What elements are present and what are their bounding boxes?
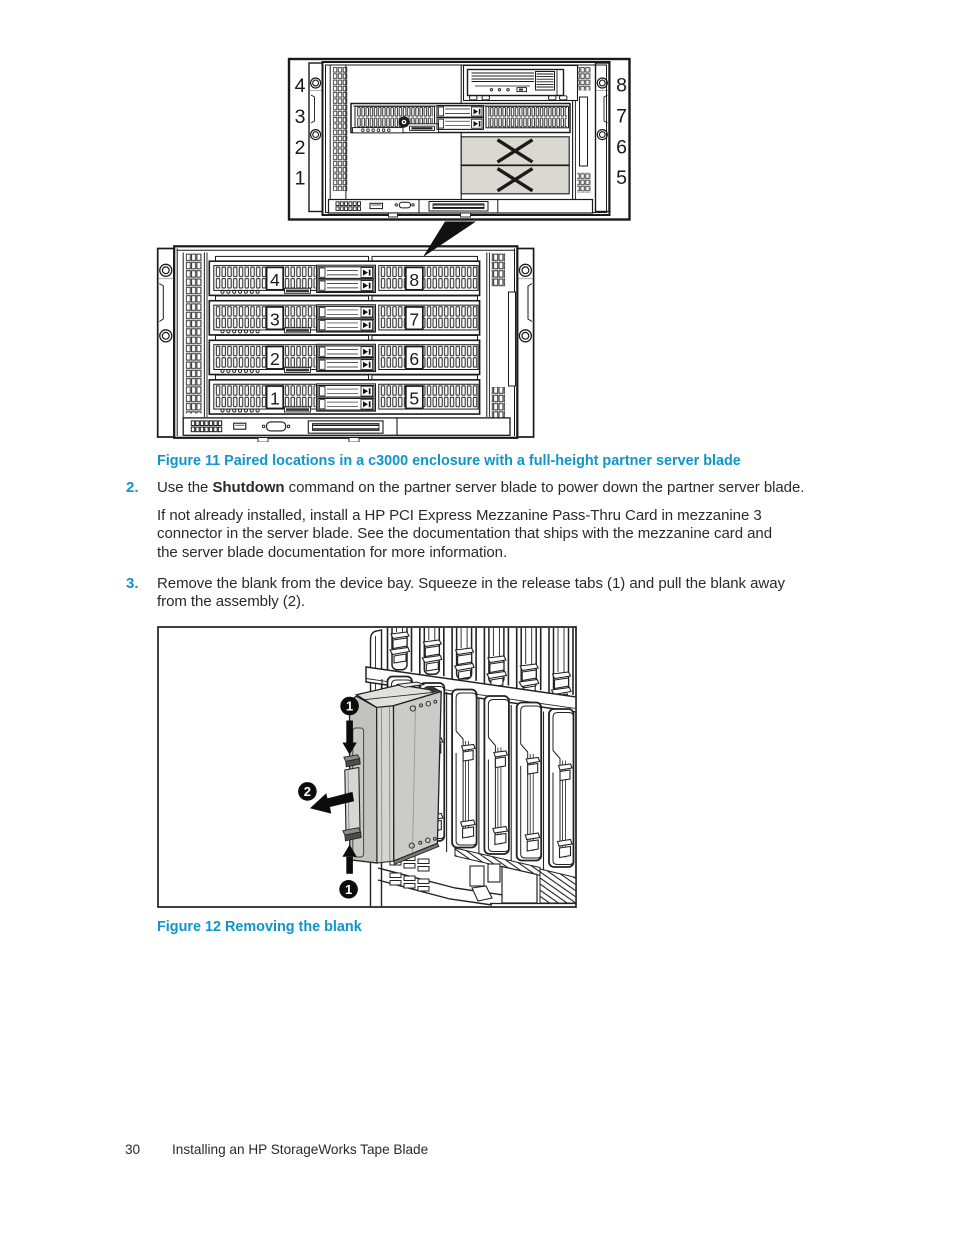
svg-text:3: 3 — [295, 106, 306, 128]
svg-text:4: 4 — [295, 75, 306, 97]
svg-text:6: 6 — [409, 349, 419, 369]
svg-text:8: 8 — [409, 270, 419, 290]
svg-text:7: 7 — [409, 309, 419, 329]
svg-text:7: 7 — [616, 106, 627, 128]
svg-text:8: 8 — [616, 75, 627, 97]
svg-text:3: 3 — [270, 309, 280, 329]
svg-text:1: 1 — [346, 699, 353, 714]
svg-text:1: 1 — [270, 388, 280, 408]
svg-text:5: 5 — [409, 388, 419, 408]
svg-text:2: 2 — [270, 349, 280, 369]
svg-text:1: 1 — [345, 882, 352, 897]
svg-text:1: 1 — [295, 168, 306, 190]
svg-text:2: 2 — [295, 137, 306, 159]
svg-text:6: 6 — [616, 137, 627, 159]
svg-text:4: 4 — [270, 270, 280, 290]
svg-text:2: 2 — [304, 784, 311, 799]
svg-text:5: 5 — [616, 167, 627, 189]
